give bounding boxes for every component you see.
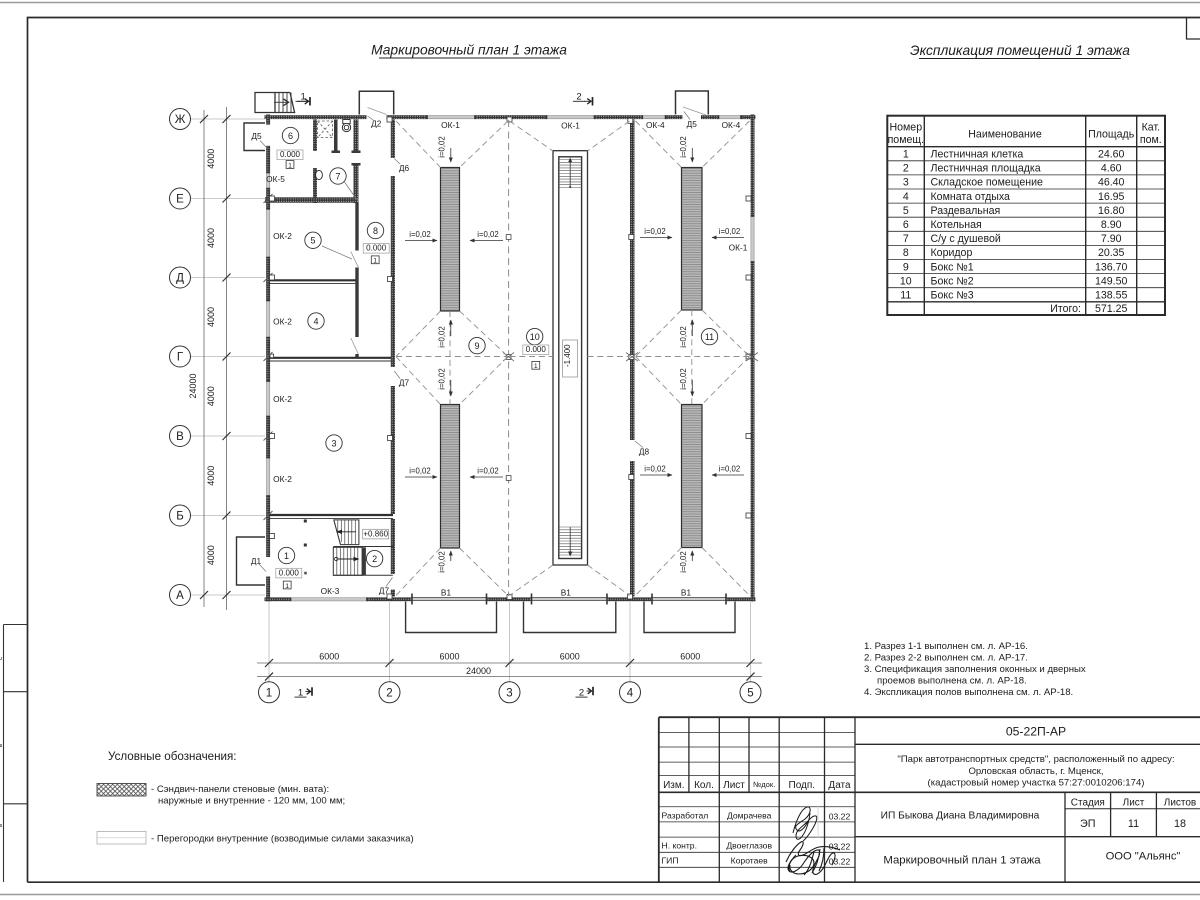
svg-text:- Сэндвич-панели стеновые (мин: - Сэндвич-панели стеновые (мин. вата): (151, 784, 329, 795)
svg-text:0.000: 0.000 (280, 150, 301, 159)
svg-text:4000: 4000 (206, 307, 216, 327)
svg-text:ОК-1: ОК-1 (441, 120, 460, 130)
svg-text:i=0,02: i=0,02 (477, 230, 498, 239)
svg-text:2: 2 (386, 687, 392, 699)
svg-text:1: 1 (284, 551, 289, 561)
svg-text:4: 4 (903, 191, 909, 203)
svg-text:7: 7 (335, 171, 340, 181)
svg-text:С/у с душевой: С/у с душевой (931, 233, 1001, 245)
svg-text:пом.: пом. (1140, 134, 1162, 146)
svg-text:11: 11 (1128, 818, 1139, 830)
svg-text:В: В (176, 431, 184, 443)
svg-text:4: 4 (627, 687, 634, 699)
svg-text:Коридор: Коридор (931, 247, 973, 259)
svg-text:4. Экспликация полов выполнена: 4. Экспликация полов выполнена см. л. АР… (864, 687, 1073, 698)
svg-text:Г: Г (177, 352, 184, 364)
svg-text:1: 1 (301, 92, 306, 103)
svg-text:4000: 4000 (206, 386, 216, 406)
svg-text:Разработал: Разработал (662, 811, 709, 821)
svg-text:i=0,02: i=0,02 (679, 368, 688, 389)
svg-text:2: 2 (903, 163, 909, 175)
svg-text:А: А (176, 590, 184, 602)
svg-text:3: 3 (506, 687, 512, 699)
svg-text:ОК-4: ОК-4 (722, 120, 741, 130)
svg-text:ОК-1: ОК-1 (729, 243, 748, 253)
svg-text:Экспликация помещений 1 этажа: Экспликация помещений 1 этажа (910, 43, 1130, 58)
svg-text:i=0,02: i=0,02 (477, 467, 498, 476)
svg-text:9: 9 (474, 341, 479, 351)
svg-text:i=0,02: i=0,02 (438, 551, 447, 572)
svg-text:Раздевальная: Раздевальная (931, 205, 1001, 217)
svg-text:10: 10 (530, 332, 540, 342)
svg-text:Д1: Д1 (251, 556, 262, 566)
svg-text:4000: 4000 (206, 466, 216, 486)
svg-text:ОК-1: ОК-1 (561, 120, 580, 130)
svg-text:Комната отдыха: Комната отдыха (931, 191, 1011, 203)
svg-text:Д7: Д7 (399, 378, 410, 388)
svg-text:Маркировочный план 1 этажа: Маркировочный план 1 этажа (883, 855, 1041, 867)
svg-text:5: 5 (903, 205, 909, 217)
svg-text:Лист: Лист (723, 780, 745, 791)
svg-text:-1.400: -1.400 (563, 344, 572, 367)
svg-text:ОК-2: ОК-2 (273, 474, 292, 484)
svg-text:24000: 24000 (466, 666, 491, 676)
svg-text:с: с (0, 657, 4, 660)
svg-text:4: 4 (313, 316, 318, 326)
svg-text:ОК-2: ОК-2 (273, 231, 292, 241)
svg-text:138.55: 138.55 (1095, 290, 1128, 302)
svg-text:Лист: Лист (1123, 798, 1145, 809)
svg-text:Итого:: Итого: (1050, 303, 1081, 315)
svg-text:Коротаев: Коротаев (731, 856, 769, 866)
svg-text:5: 5 (747, 687, 753, 699)
svg-text:i=0,02: i=0,02 (679, 326, 688, 347)
svg-text:571.25: 571.25 (1095, 303, 1128, 315)
svg-text:6: 6 (288, 131, 293, 141)
svg-text:0.000: 0.000 (279, 568, 300, 577)
svg-text:1: 1 (266, 687, 272, 699)
svg-text:136.70: 136.70 (1095, 261, 1128, 273)
svg-text:Стадия: Стадия (1071, 798, 1105, 809)
svg-text:i=0,02: i=0,02 (438, 326, 447, 347)
svg-text:3: 3 (331, 438, 336, 448)
svg-text:Д8: Д8 (639, 447, 650, 457)
svg-text:3. Спецификация заполнения око: 3. Спецификация заполнения оконных и две… (864, 664, 1086, 675)
svg-text:24.60: 24.60 (1098, 149, 1125, 161)
svg-text:Листов: Листов (1164, 798, 1197, 809)
svg-text:ОК-2: ОК-2 (273, 394, 292, 404)
svg-text:1: 1 (285, 583, 289, 590)
svg-text:8.90: 8.90 (1101, 219, 1122, 231)
svg-text:1: 1 (903, 149, 909, 161)
svg-text:проемов выполнена см. л. АР-18: проемов выполнена см. л. АР-18. (877, 676, 1027, 687)
svg-text:Наименование: Наименование (968, 129, 1042, 141)
svg-text:5: 5 (310, 236, 315, 246)
svg-text:ОК-3: ОК-3 (321, 586, 340, 596)
svg-text:i=0,02: i=0,02 (409, 230, 430, 239)
svg-text:6000: 6000 (680, 652, 700, 662)
svg-text:7: 7 (903, 233, 909, 245)
svg-text:Ж: Ж (175, 114, 186, 126)
svg-text:8: 8 (903, 247, 909, 259)
svg-text:помещ.: помещ. (888, 134, 924, 146)
svg-text:4000: 4000 (206, 545, 216, 565)
svg-text:и: и (0, 824, 4, 827)
svg-text:10: 10 (900, 275, 912, 287)
svg-text:8: 8 (373, 226, 378, 236)
svg-text:"Парк автотранспортных средств: "Парк автотранспортных средств", располо… (897, 754, 1174, 765)
svg-text:Бокс №2: Бокс №2 (931, 275, 974, 287)
svg-text:46.40: 46.40 (1098, 177, 1125, 189)
svg-text:4000: 4000 (206, 228, 216, 248)
svg-text:Кат.: Кат. (1142, 122, 1160, 134)
svg-text:05-22П-АР: 05-22П-АР (1006, 725, 1066, 739)
svg-text:1: 1 (373, 258, 377, 265)
svg-text:1: 1 (534, 363, 538, 370)
svg-text:Кол.: Кол. (694, 780, 714, 791)
svg-text:Д5: Д5 (251, 131, 262, 141)
svg-text:16.95: 16.95 (1098, 191, 1125, 203)
svg-text:i=0,02: i=0,02 (679, 551, 688, 572)
svg-text:i=0,02: i=0,02 (719, 465, 740, 474)
svg-text:ООО "Альянс": ООО "Альянс" (1106, 851, 1181, 863)
svg-text:i=0,02: i=0,02 (719, 227, 740, 236)
svg-text:6000: 6000 (319, 652, 339, 662)
svg-text:i=0,02: i=0,02 (644, 227, 665, 236)
svg-text:18: 18 (1174, 818, 1186, 830)
svg-text:Площадь: Площадь (1088, 129, 1135, 141)
svg-text:6: 6 (903, 219, 909, 231)
svg-text:ОК-4: ОК-4 (646, 120, 665, 130)
svg-text:Складское помещение: Складское помещение (931, 177, 1043, 189)
svg-text:2: 2 (372, 554, 377, 564)
svg-text:ОК-2: ОК-2 (273, 316, 292, 326)
svg-text:наружные и внутренние - 120 мм: наружные и внутренние - 120 мм, 100 мм; (158, 796, 345, 807)
svg-text:i=0,02: i=0,02 (644, 465, 665, 474)
svg-text:Изм.: Изм. (663, 780, 684, 791)
svg-text:Маркировочный план 1 этажа: Маркировочный план 1 этажа (371, 43, 567, 58)
svg-text:В1: В1 (561, 587, 572, 597)
svg-text:i=0,02: i=0,02 (438, 368, 447, 389)
svg-text:Домрачева: Домрачева (727, 811, 772, 821)
svg-text:03.22: 03.22 (829, 812, 851, 822)
svg-text:В1: В1 (681, 587, 692, 597)
svg-text:i=0,02: i=0,02 (438, 136, 447, 157)
svg-text:Б: Б (176, 511, 184, 523)
svg-text:Лестничная площадка: Лестничная площадка (931, 163, 1041, 175)
svg-text:Д7: Д7 (379, 585, 390, 595)
svg-text:Д: Д (176, 273, 184, 285)
svg-text:6000: 6000 (439, 652, 459, 662)
svg-text:Н. контр.: Н. контр. (662, 841, 697, 851)
svg-text:20.35: 20.35 (1098, 247, 1125, 259)
svg-text:Бокс №1: Бокс №1 (931, 261, 974, 273)
svg-text:1. Разрез 1-1 выполнен см. л.: 1. Разрез 1-1 выполнен см. л. АР-16. (864, 641, 1028, 652)
svg-text:Дата: Дата (828, 780, 851, 791)
svg-text:Орловская область, г. Мценск,: Орловская область, г. Мценск, (968, 766, 1103, 777)
svg-text:1: 1 (288, 162, 292, 169)
svg-text:В1: В1 (441, 587, 452, 597)
svg-text:ИП Быкова Диана Владимировна: ИП Быкова Диана Владимировна (881, 811, 1040, 822)
svg-text:i=0,02: i=0,02 (409, 467, 430, 476)
svg-text:ОК-5: ОК-5 (266, 174, 285, 184)
svg-text:Е: Е (176, 194, 184, 206)
svg-text:Условные обозначения:: Условные обозначения: (108, 750, 236, 763)
svg-text:+0.860: +0.860 (363, 529, 388, 538)
svg-text:(кадастровый номер участка 57:: (кадастровый номер участка 57:27:0010206… (928, 778, 1145, 789)
svg-text:11: 11 (900, 290, 911, 302)
svg-text:9: 9 (903, 261, 909, 273)
svg-text:3: 3 (903, 177, 909, 189)
svg-text:Номер: Номер (889, 122, 922, 134)
svg-text:Двоеглазов: Двоеглазов (726, 841, 772, 851)
svg-text:2. Разрез 2-2 выполнен см. л.: 2. Разрез 2-2 выполнен см. л. АР-17. (864, 653, 1028, 664)
svg-text:24000: 24000 (188, 373, 198, 398)
svg-text:Котельная: Котельная (931, 219, 982, 231)
svg-text:0.000: 0.000 (366, 244, 387, 253)
svg-text:i=0,02: i=0,02 (679, 136, 688, 157)
svg-text:16.80: 16.80 (1098, 205, 1125, 217)
svg-text:7.90: 7.90 (1101, 233, 1122, 245)
svg-text:Д5: Д5 (687, 119, 698, 129)
svg-text:- Перегородки внутренние (возв: - Перегородки внутренние (возводимые сил… (151, 834, 414, 845)
svg-text:№док.: №док. (753, 780, 775, 789)
svg-text:4.60: 4.60 (1101, 163, 1122, 175)
svg-text:6000: 6000 (560, 652, 580, 662)
svg-text:ГИП: ГИП (662, 856, 679, 866)
svg-text:2: 2 (576, 92, 581, 103)
svg-text:149.50: 149.50 (1095, 275, 1128, 287)
svg-text:11: 11 (705, 332, 714, 342)
svg-text:в: в (0, 744, 4, 747)
svg-text:Подп.: Подп. (789, 780, 816, 791)
svg-text:Лестничная клетка: Лестничная клетка (931, 149, 1024, 161)
svg-text:0.000: 0.000 (526, 345, 547, 354)
svg-text:4000: 4000 (206, 149, 216, 169)
svg-text:Д6: Д6 (399, 163, 410, 173)
svg-text:ЭП: ЭП (1080, 818, 1096, 830)
svg-text:Бокс №3: Бокс №3 (931, 290, 974, 302)
